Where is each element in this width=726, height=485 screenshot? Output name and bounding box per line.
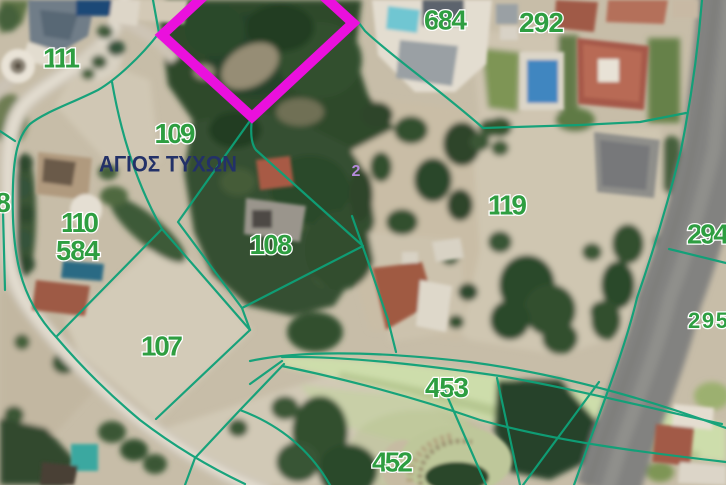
svg-text:295: 295	[688, 308, 726, 333]
svg-text:108: 108	[250, 229, 293, 260]
svg-text:119: 119	[488, 190, 527, 221]
svg-text:111: 111	[43, 43, 80, 74]
svg-text:109: 109	[155, 118, 196, 149]
svg-text:684: 684	[424, 5, 467, 36]
svg-text:584: 584	[56, 235, 100, 266]
svg-text:452: 452	[372, 447, 413, 478]
svg-text:ΑΓΙΟΣ ΤΥΧΩΝ: ΑΓΙΟΣ ΤΥΧΩΝ	[99, 152, 237, 177]
svg-text:453: 453	[425, 372, 469, 403]
svg-text:107: 107	[141, 331, 183, 362]
svg-text:110: 110	[61, 207, 99, 238]
svg-text:8: 8	[0, 187, 11, 218]
svg-text:292: 292	[519, 7, 564, 38]
svg-text:2: 2	[352, 163, 361, 180]
svg-text:294: 294	[687, 219, 726, 250]
